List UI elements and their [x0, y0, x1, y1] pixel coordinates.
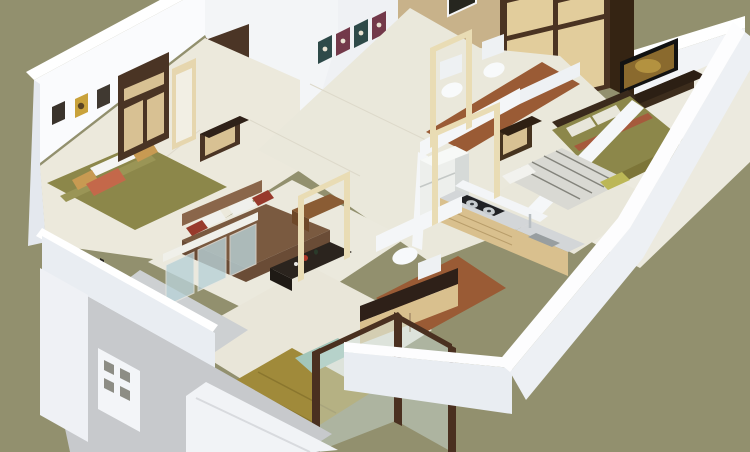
art-flower-2	[341, 39, 346, 44]
art-flower-4	[377, 23, 382, 28]
art-flower-3	[359, 31, 364, 36]
doorframe2-left-post	[298, 196, 304, 282]
tv-picture-glow	[635, 59, 661, 73]
doorframe3-left-post	[432, 132, 438, 226]
bedroom1-wardrobe-panel-2	[147, 92, 164, 141]
floor-plan-image	[0, 0, 750, 452]
stove-burner-1-center	[470, 203, 474, 206]
doorframe2-right-post	[344, 174, 350, 260]
mirror-glass	[176, 68, 192, 143]
art-flower-1	[323, 47, 328, 52]
court-west-wall	[40, 268, 88, 442]
coffee-table-cup	[294, 262, 298, 266]
picture-sunflower-center	[78, 103, 84, 109]
coffee-table-bottle	[314, 249, 318, 254]
bedroom1-wardrobe-panel-1	[124, 100, 143, 152]
stove-burner-2-center	[487, 210, 491, 213]
doorframe3-right-post	[494, 105, 500, 199]
floor-plan-svg	[0, 0, 750, 452]
